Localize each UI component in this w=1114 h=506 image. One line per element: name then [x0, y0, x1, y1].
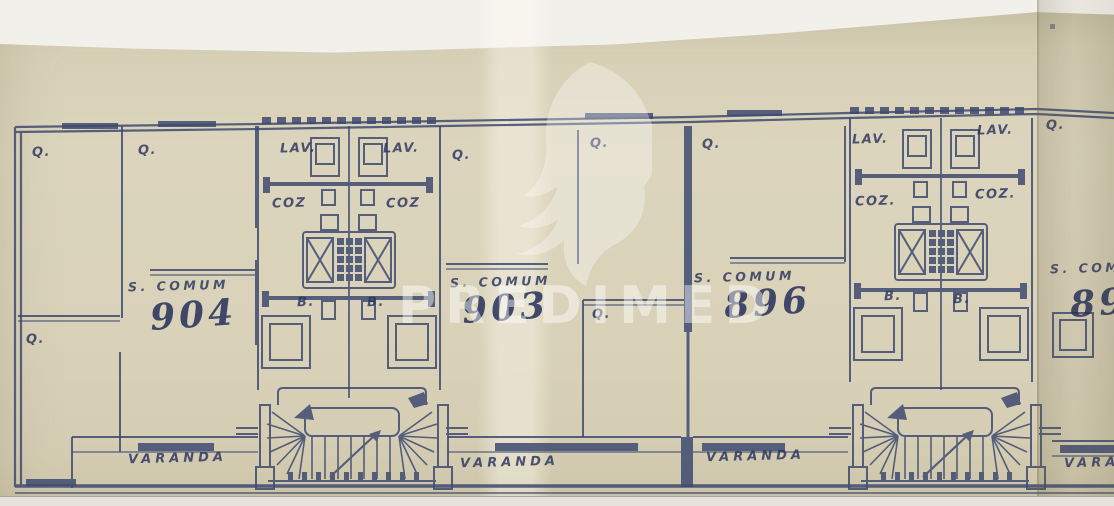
bedroom-label: Q.: [702, 138, 721, 151]
kitchen-label: COZ: [386, 197, 421, 211]
bathroom-label: B.: [297, 296, 315, 309]
balcony-label: VARANDA: [706, 449, 805, 465]
bathroom-label: B.: [953, 293, 971, 306]
staircase-2: [829, 388, 1061, 489]
kitchen-label: COZ.: [975, 187, 1016, 201]
bedroom-label: Q.: [138, 144, 157, 157]
unit-896-walls: [730, 126, 845, 263]
bedroom-label: Q.: [26, 333, 45, 346]
bathroom-label: B.: [884, 290, 902, 303]
windows: [62, 24, 1055, 129]
kitchen-label: COZ.: [855, 194, 896, 208]
service-core-2: [850, 118, 1032, 390]
photo-bottom-edge: [0, 496, 1114, 506]
unit-number-904: 904: [149, 294, 238, 336]
balcony-label: VARANDA: [128, 451, 227, 467]
scanned-floor-plan-photo: Q. Q. Q. Q. Q. Q. Q. Q. LAV. LAV. LAV. L…: [0, 0, 1114, 506]
service-core-1: [258, 126, 440, 398]
staircase-1: [236, 388, 468, 489]
floor-plan-drawing: [0, 0, 1114, 506]
paper-fold: [1037, 0, 1114, 506]
laundry-label: LAV.: [280, 142, 317, 156]
bedroom-label: Q.: [452, 149, 471, 162]
bedroom-label: Q.: [32, 146, 51, 159]
unit-number-896: 896: [723, 282, 812, 324]
laundry-label: LAV.: [383, 142, 420, 156]
kitchen-label: COZ: [272, 197, 307, 211]
unit-number-903: 903: [461, 287, 550, 329]
bedroom-label: Q.: [590, 137, 609, 150]
laundry-label: LAV.: [977, 124, 1014, 138]
balcony-label: VARANDA: [460, 455, 559, 471]
laundry-label: LAV.: [852, 133, 889, 147]
bathroom-label: B.: [367, 296, 385, 309]
bedroom-label: Q.: [592, 308, 611, 321]
